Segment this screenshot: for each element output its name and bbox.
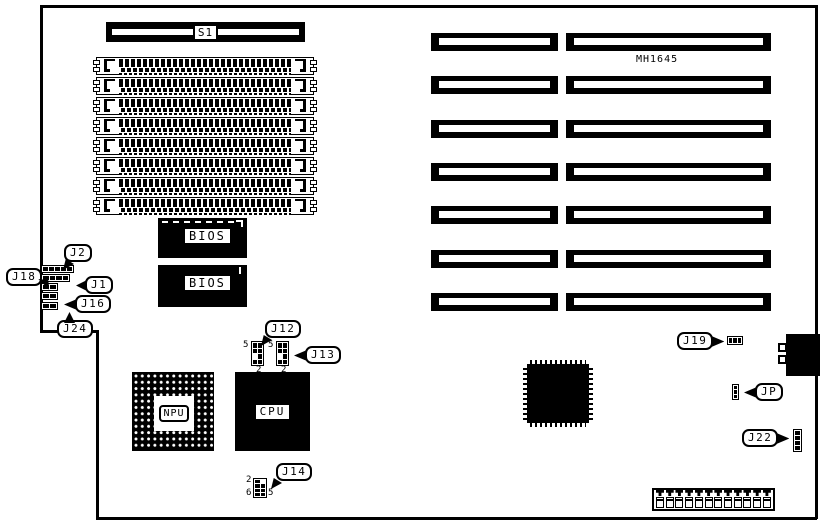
power-pin — [753, 490, 761, 509]
simm-socket — [96, 77, 314, 95]
simm-end-tab — [310, 147, 317, 152]
expansion-slot-row — [431, 250, 776, 268]
simm-end-tab — [310, 200, 317, 205]
expansion-slot-row — [431, 76, 776, 94]
callout-label: J13 — [311, 348, 335, 361]
expansion-slot-row — [431, 33, 776, 51]
simm-end-tab — [310, 120, 317, 125]
power-pin — [714, 490, 722, 509]
simm-end-tab — [310, 67, 317, 72]
expansion-slot — [566, 293, 771, 311]
simm-end-tab — [310, 80, 317, 85]
callout-label: J24 — [63, 322, 87, 335]
power-pin — [743, 490, 751, 509]
simm-end-tab — [93, 67, 100, 72]
simm-latch-icon — [295, 159, 306, 172]
simm-end-tab — [310, 140, 317, 145]
j12-pin2-label: 2 — [256, 366, 261, 375]
callout-label: J1 — [91, 278, 107, 291]
callout-j1: J1 — [85, 276, 113, 294]
expansion-slot-row — [431, 163, 776, 181]
simm-latch-icon — [104, 119, 115, 132]
expansion-slot — [431, 76, 558, 94]
keyboard-connector — [786, 334, 820, 376]
callout-label: J18 — [12, 270, 36, 283]
simm-pin-row — [119, 79, 291, 94]
simm-latch-icon — [295, 119, 306, 132]
simm-socket — [96, 197, 314, 215]
simm-end-tab — [93, 207, 100, 212]
callout-j13: J13 — [305, 346, 341, 364]
expansion-slot — [431, 163, 558, 181]
simm-latch-icon — [295, 59, 306, 72]
simm-pin-row — [119, 159, 291, 174]
jumper-j19 — [727, 336, 743, 345]
board-edge-bottom — [96, 517, 817, 521]
callout-j14: J14 — [276, 463, 312, 481]
simm-end-tab — [93, 167, 100, 172]
simm-socket — [96, 157, 314, 175]
callout-j19: J19 — [677, 332, 713, 350]
simm-latch-icon — [104, 79, 115, 92]
callout-label: JP — [761, 385, 777, 398]
callout-label: J16 — [81, 297, 105, 310]
expansion-slot — [431, 33, 558, 51]
jumper-j14 — [253, 478, 267, 498]
power-pin — [705, 490, 713, 509]
simm-end-tab — [93, 100, 100, 105]
bios-chip-2: BIOS — [158, 265, 247, 307]
expansion-slot — [566, 206, 771, 224]
j13-pin2-label: 2 — [281, 366, 286, 375]
simm-end-tab — [93, 60, 100, 65]
callout-label: J19 — [683, 334, 707, 347]
simm-latch-icon — [295, 179, 306, 192]
expansion-slot — [431, 206, 558, 224]
jumper-j13 — [276, 341, 289, 366]
simm-bank — [96, 57, 314, 217]
simm-end-tab — [310, 207, 317, 212]
expansion-slots — [431, 0, 776, 330]
npu-socket: NPU — [132, 372, 214, 451]
simm-end-tab — [310, 180, 317, 185]
expansion-slot — [431, 250, 558, 268]
simm-pin-row — [119, 139, 291, 154]
expansion-slot — [566, 250, 771, 268]
simm-end-tab — [93, 200, 100, 205]
power-pin — [675, 490, 683, 509]
simm-end-tab — [310, 160, 317, 165]
simm-pin-row — [119, 119, 291, 134]
bios1-socket-pins — [162, 221, 237, 223]
s1-dip-switch: S1 — [106, 22, 305, 42]
simm-end-tab — [93, 80, 100, 85]
simm-end-tab — [93, 140, 100, 145]
cpu-label: CPU — [256, 405, 290, 419]
jumper-j24 — [41, 302, 58, 310]
power-connector — [652, 488, 775, 511]
simm-pin-row — [119, 59, 291, 74]
simm-pin-row — [119, 199, 291, 214]
simm-latch-icon — [295, 139, 306, 152]
simm-latch-icon — [295, 199, 306, 212]
power-pin — [734, 490, 742, 509]
simm-end-tab — [310, 87, 317, 92]
power-pin — [695, 490, 703, 509]
j12-pin5-label: 5 — [243, 341, 248, 350]
power-pin — [763, 490, 771, 509]
expansion-slot — [566, 163, 771, 181]
simm-socket — [96, 137, 314, 155]
j14-pin6-label: 6 — [246, 489, 251, 498]
simm-end-tab — [93, 147, 100, 152]
simm-latch-icon — [104, 179, 115, 192]
simm-socket — [96, 117, 314, 135]
power-pin — [685, 490, 693, 509]
simm-latch-icon — [104, 59, 115, 72]
callout-j2: J2 — [64, 244, 92, 262]
expansion-slot — [566, 76, 771, 94]
simm-latch-icon — [104, 199, 115, 212]
j14-pin5-label: 5 — [268, 489, 273, 498]
callout-j18: J18 — [6, 268, 42, 286]
callout-label: J12 — [271, 322, 295, 335]
bios1-corner-mark — [236, 220, 243, 227]
bios-chip-1: BIOS — [158, 218, 247, 258]
board-id-label: MH1645 — [636, 54, 678, 65]
expansion-slot-row — [431, 293, 776, 311]
jumper-j18 — [41, 283, 58, 291]
power-pin — [724, 490, 732, 509]
keyboard-connector-notch — [778, 343, 787, 352]
jumper-jp — [732, 384, 739, 400]
qfp-chip-body — [527, 364, 589, 423]
board-edge-left-lower — [96, 330, 99, 519]
callout-jp: JP — [755, 383, 783, 401]
simm-end-tab — [93, 107, 100, 112]
board-edge-right — [815, 5, 818, 519]
expansion-slot — [566, 33, 771, 51]
expansion-slot-row — [431, 206, 776, 224]
motherboard-diagram: S1 — [0, 0, 823, 527]
simm-pin-row — [119, 99, 291, 114]
jumper-j16 — [41, 292, 58, 300]
expansion-slot — [431, 120, 558, 138]
cpu-chip: CPU — [235, 372, 310, 451]
simm-end-tab — [310, 167, 317, 172]
simm-end-tab — [93, 180, 100, 185]
power-pin — [666, 490, 674, 509]
callout-j12: J12 — [265, 320, 301, 338]
expansion-slot — [431, 293, 558, 311]
simm-latch-icon — [104, 139, 115, 152]
simm-latch-icon — [104, 159, 115, 172]
j13-pin5-label: 5 — [268, 341, 273, 350]
simm-end-tab — [93, 120, 100, 125]
simm-latch-icon — [295, 99, 306, 112]
bios2-label: BIOS — [184, 275, 231, 291]
callout-label: J22 — [748, 431, 772, 444]
simm-socket — [96, 177, 314, 195]
simm-end-tab — [93, 87, 100, 92]
simm-end-tab — [93, 187, 100, 192]
simm-end-tab — [310, 127, 317, 132]
simm-end-tab — [310, 107, 317, 112]
callout-j16: J16 — [75, 295, 111, 313]
simm-socket — [96, 97, 314, 115]
expansion-slot — [566, 120, 771, 138]
simm-end-tab — [93, 160, 100, 165]
j14-pin2-label: 2 — [246, 476, 251, 485]
simm-pin-row — [119, 179, 291, 194]
simm-socket — [96, 57, 314, 75]
callout-label: J2 — [70, 246, 86, 259]
power-pin — [656, 490, 664, 509]
keyboard-connector-notch — [778, 355, 787, 364]
bios1-label: BIOS — [184, 228, 231, 244]
callout-j22: J22 — [742, 429, 778, 447]
npu-label: NPU — [159, 405, 188, 422]
simm-end-tab — [310, 100, 317, 105]
simm-latch-icon — [104, 99, 115, 112]
simm-latch-icon — [295, 79, 306, 92]
simm-end-tab — [93, 127, 100, 132]
callout-label: J14 — [282, 465, 306, 478]
simm-end-tab — [310, 187, 317, 192]
s1-label: S1 — [193, 24, 218, 41]
qfp-chip — [523, 360, 593, 427]
connector-j22 — [793, 429, 802, 452]
callout-j24: J24 — [57, 320, 93, 338]
expansion-slot-row — [431, 120, 776, 138]
bios2-notch-mark — [239, 267, 241, 274]
npu-socket-center: NPU — [154, 396, 194, 431]
simm-end-tab — [310, 60, 317, 65]
